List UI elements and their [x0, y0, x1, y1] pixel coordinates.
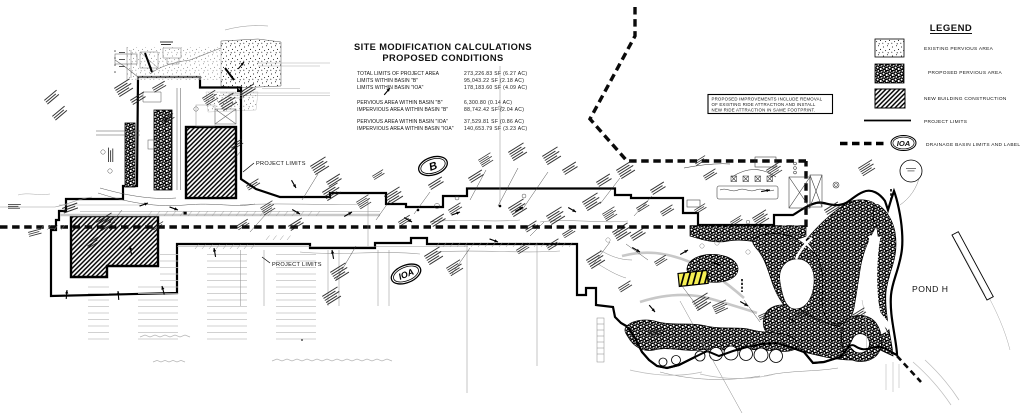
svg-text:LEGEND: LEGEND: [930, 23, 973, 34]
svg-text:178,183.60 SF (4.09 AC): 178,183.60 SF (4.09 AC): [464, 85, 527, 91]
svg-text:273,226.83 SF (6.27 AC): 273,226.83 SF (6.27 AC): [464, 71, 527, 77]
svg-text:PROPOSED IMPROVEMENTS INCLUDE: PROPOSED IMPROVEMENTS INCLUDE REMOVAL: [712, 97, 823, 102]
svg-text:LIMITS WITHIN BASIN "IOA": LIMITS WITHIN BASIN "IOA": [357, 85, 424, 91]
svg-text:PROJECT LIMITS: PROJECT LIMITS: [256, 161, 306, 167]
svg-text:NEW RIDE ATTRACTION IN SAME FO: NEW RIDE ATTRACTION IN SAME FOOTPRINT.: [712, 108, 816, 113]
svg-text:95,043.22 SF (2.18 AC): 95,043.22 SF (2.18 AC): [464, 78, 524, 84]
svg-text:6,300.80 (0.14 AC): 6,300.80 (0.14 AC): [464, 100, 512, 106]
svg-text:IMPERVIOUS AREA WITHIN BASIN ": IMPERVIOUS AREA WITHIN BASIN "B": [357, 107, 448, 113]
svg-text:37,529.81 SF (0.86 AC): 37,529.81 SF (0.86 AC): [464, 119, 524, 125]
svg-text:SITE MODIFICATION CALCULATIONS: SITE MODIFICATION CALCULATIONS: [354, 42, 532, 52]
svg-text:PROJECT LIMITS: PROJECT LIMITS: [924, 119, 967, 125]
svg-text:PERVIOUS AREA WITHIN BASIN "IO: PERVIOUS AREA WITHIN BASIN "IOA": [357, 119, 448, 125]
svg-text:POND H: POND H: [912, 284, 948, 294]
svg-text:TOTAL LIMITS OF PROJECT AREA: TOTAL LIMITS OF PROJECT AREA: [357, 71, 440, 77]
svg-text:EXISTING PERVIOUS AREA: EXISTING PERVIOUS AREA: [924, 46, 994, 52]
svg-text:140,653.79 SF (3.23 AC): 140,653.79 SF (3.23 AC): [464, 126, 527, 132]
svg-text:OF EXISTING RIDE ATTRACTION AN: OF EXISTING RIDE ATTRACTION AND INSTALL: [712, 102, 816, 107]
svg-text:NEW BUILDING CONSTRUCTION: NEW BUILDING CONSTRUCTION: [924, 96, 1007, 102]
svg-text:PERVIOUS AREA WITHIN BASIN "B": PERVIOUS AREA WITHIN BASIN "B": [357, 100, 443, 106]
svg-text:DRAINAGE BASIN LIMITS AND LABE: DRAINAGE BASIN LIMITS AND LABEL: [926, 142, 1020, 148]
svg-text:88,742.42 SF (2.04 AC): 88,742.42 SF (2.04 AC): [464, 107, 524, 113]
svg-text:IOA: IOA: [897, 139, 911, 148]
svg-text:PROJECT LIMITS: PROJECT LIMITS: [272, 262, 322, 268]
svg-text:LIMITS WITHIN BASIN "B": LIMITS WITHIN BASIN "B": [357, 78, 418, 84]
svg-text:IMPERVIOUS AREA WITHIN BASIN ": IMPERVIOUS AREA WITHIN BASIN "IOA": [357, 126, 454, 132]
svg-text:PROPOSED CONDITIONS: PROPOSED CONDITIONS: [382, 53, 503, 63]
svg-text:PROPOSED PERVIOUS AREA: PROPOSED PERVIOUS AREA: [928, 70, 1002, 76]
